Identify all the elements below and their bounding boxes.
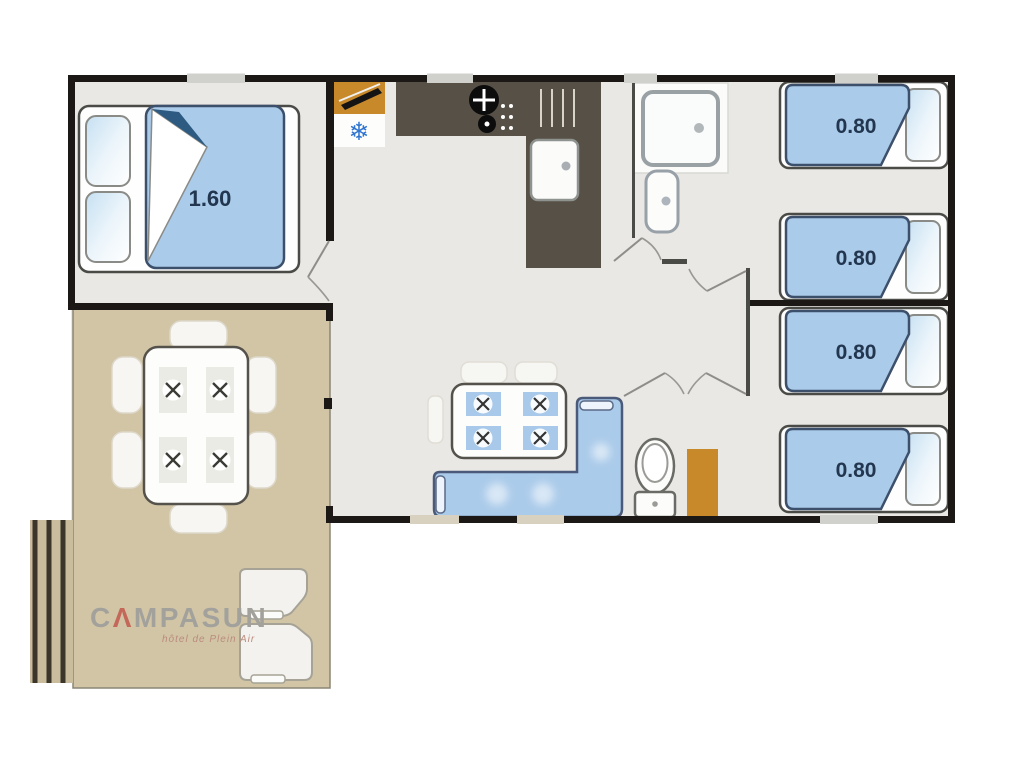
wall-master-bedroom-south bbox=[68, 303, 333, 310]
toilet-seat bbox=[643, 444, 668, 482]
basin-faucet-icon bbox=[662, 197, 671, 206]
wall-master-bedroom-east bbox=[326, 75, 334, 241]
place-setting bbox=[159, 437, 187, 483]
chair bbox=[246, 357, 276, 413]
kitchen-sink bbox=[531, 140, 578, 200]
bed-width-label: 0.80 bbox=[836, 341, 877, 364]
bed-width-label: 0.80 bbox=[836, 115, 877, 138]
chair bbox=[428, 396, 443, 443]
window bbox=[820, 515, 878, 524]
sofa-armrest bbox=[580, 401, 613, 410]
place-setting bbox=[523, 392, 558, 416]
single-bed-2: 0.80 bbox=[780, 214, 948, 300]
pillow bbox=[86, 116, 130, 186]
logo-letters-mpasun: MPASUN bbox=[134, 602, 268, 633]
bed-width-label: 0.80 bbox=[836, 459, 877, 482]
window bbox=[410, 515, 459, 524]
place-setting bbox=[466, 426, 501, 450]
place-setting bbox=[206, 437, 234, 483]
chair bbox=[112, 432, 142, 488]
pillow bbox=[906, 315, 940, 387]
sofa-armrest bbox=[436, 476, 445, 513]
pillow bbox=[86, 192, 130, 262]
chair bbox=[170, 321, 227, 350]
storage-cabinet bbox=[687, 449, 718, 517]
freezer-snowflake-icon: ❄ bbox=[349, 118, 370, 146]
tent-icon: Λ bbox=[113, 602, 134, 633]
place-setting bbox=[523, 426, 558, 450]
master-bedroom: 1.60 bbox=[79, 106, 299, 272]
shower-tray bbox=[643, 92, 718, 165]
shower-drain-icon bbox=[694, 123, 704, 133]
place-setting bbox=[206, 367, 234, 413]
window bbox=[187, 74, 245, 84]
floor-plan-drawing: CΛMPASUN hôtel de Plein Air bbox=[0, 0, 1024, 768]
pillow bbox=[906, 89, 940, 161]
wall-bathroom-south-stub bbox=[662, 259, 687, 264]
window bbox=[835, 74, 878, 84]
place-setting bbox=[466, 392, 501, 416]
entrance-steps bbox=[30, 520, 73, 683]
chair bbox=[515, 362, 557, 383]
chair bbox=[170, 504, 227, 533]
wall-stub bbox=[326, 506, 333, 516]
window bbox=[517, 515, 564, 524]
wall-stub bbox=[326, 310, 333, 321]
faucet-icon bbox=[562, 162, 571, 171]
floor-plan-page: CΛMPASUN hôtel de Plein Air bbox=[0, 0, 1024, 768]
pillow bbox=[906, 221, 940, 293]
window bbox=[427, 74, 473, 84]
wall-right bbox=[948, 75, 955, 523]
logo-wordmark: CΛMPASUN bbox=[90, 602, 268, 633]
bed-width-label: 0.80 bbox=[836, 247, 877, 270]
fridge-freezer: ❄ bbox=[333, 81, 385, 147]
wall-left bbox=[68, 75, 75, 310]
chair bbox=[246, 432, 276, 488]
single-bed-1: 0.80 bbox=[780, 82, 948, 168]
single-bed-4: 0.80 bbox=[780, 426, 948, 512]
single-bed-3: 0.80 bbox=[780, 308, 948, 394]
chair bbox=[461, 362, 507, 383]
window bbox=[624, 74, 657, 84]
pillow bbox=[906, 433, 940, 505]
wall-stub bbox=[324, 398, 332, 409]
logo-tagline: hôtel de Plein Air bbox=[162, 634, 255, 645]
wall-bathroom-west bbox=[632, 83, 635, 238]
place-setting bbox=[159, 367, 187, 413]
logo-letter-c: C bbox=[90, 602, 113, 633]
wall-bedroom-divider bbox=[748, 300, 948, 306]
living-table bbox=[452, 384, 566, 458]
bed-width-label: 1.60 bbox=[189, 186, 232, 211]
terrace-dining-table bbox=[144, 347, 248, 504]
wall-hallway-east bbox=[746, 268, 750, 396]
lounge-chair-footrest bbox=[251, 675, 285, 683]
chair bbox=[112, 357, 142, 413]
flush-button-icon bbox=[652, 501, 658, 507]
